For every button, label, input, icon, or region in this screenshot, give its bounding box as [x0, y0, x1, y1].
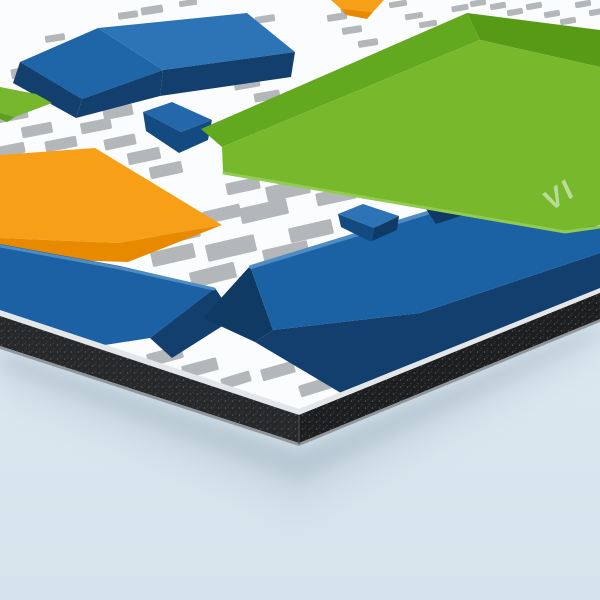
product-photo: VI	[0, 0, 600, 600]
panel-mockup-stage: VI	[0, 0, 600, 600]
